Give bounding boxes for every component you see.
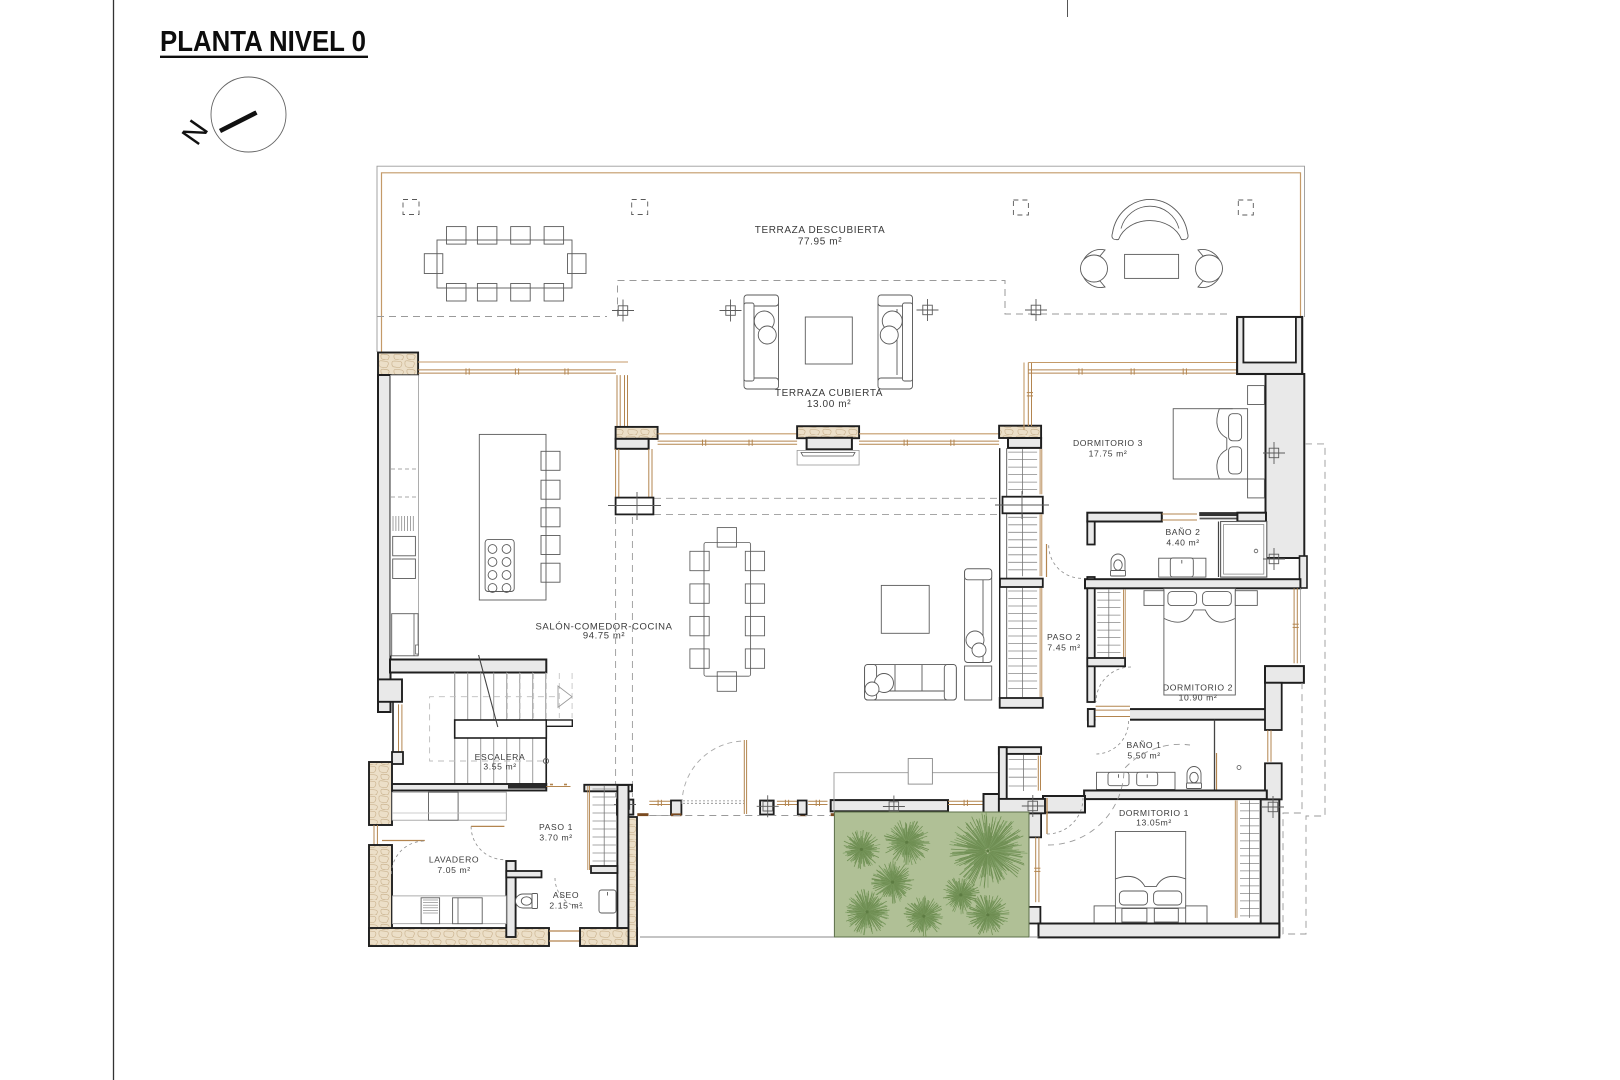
- svg-text:PLANTA NIVEL 0: PLANTA NIVEL 0: [160, 26, 366, 58]
- svg-text:TERRAZA CUBIERTA: TERRAZA CUBIERTA: [775, 388, 883, 399]
- svg-text:DORMITORIO 2: DORMITORIO 2: [1163, 683, 1233, 693]
- svg-text:7.45 m²: 7.45 m²: [1047, 643, 1080, 653]
- svg-text:94.75 m²: 94.75 m²: [583, 631, 625, 642]
- svg-text:PASO 1: PASO 1: [539, 822, 573, 832]
- svg-text:5.50 m²: 5.50 m²: [1127, 751, 1160, 761]
- svg-text:DORMITORIO 3: DORMITORIO 3: [1073, 438, 1143, 448]
- svg-text:TERRAZA DESCUBIERTA: TERRAZA DESCUBIERTA: [755, 225, 886, 236]
- svg-text:ASEO: ASEO: [553, 890, 579, 900]
- svg-text:10.90 m²: 10.90 m²: [1179, 693, 1218, 703]
- svg-text:3.55 m²: 3.55 m²: [483, 762, 516, 772]
- svg-text:LAVADERO: LAVADERO: [429, 855, 479, 865]
- svg-text:PASO 2: PASO 2: [1047, 632, 1081, 642]
- svg-text:ESCALERA: ESCALERA: [475, 752, 526, 762]
- svg-text:17.75 m²: 17.75 m²: [1089, 449, 1128, 459]
- svg-text:77.95 m²: 77.95 m²: [798, 237, 842, 248]
- svg-text:4.40 m²: 4.40 m²: [1166, 538, 1199, 548]
- svg-text:3.70 m²: 3.70 m²: [539, 833, 572, 843]
- svg-text:13.00 m²: 13.00 m²: [807, 399, 851, 410]
- svg-text:7.05 m²: 7.05 m²: [437, 865, 470, 875]
- svg-text:DORMITORIO 1: DORMITORIO 1: [1119, 808, 1189, 818]
- svg-text:BAÑO 2: BAÑO 2: [1165, 527, 1200, 537]
- svg-text:2.15 m²: 2.15 m²: [549, 901, 582, 911]
- svg-text:13.05m²: 13.05m²: [1136, 818, 1172, 828]
